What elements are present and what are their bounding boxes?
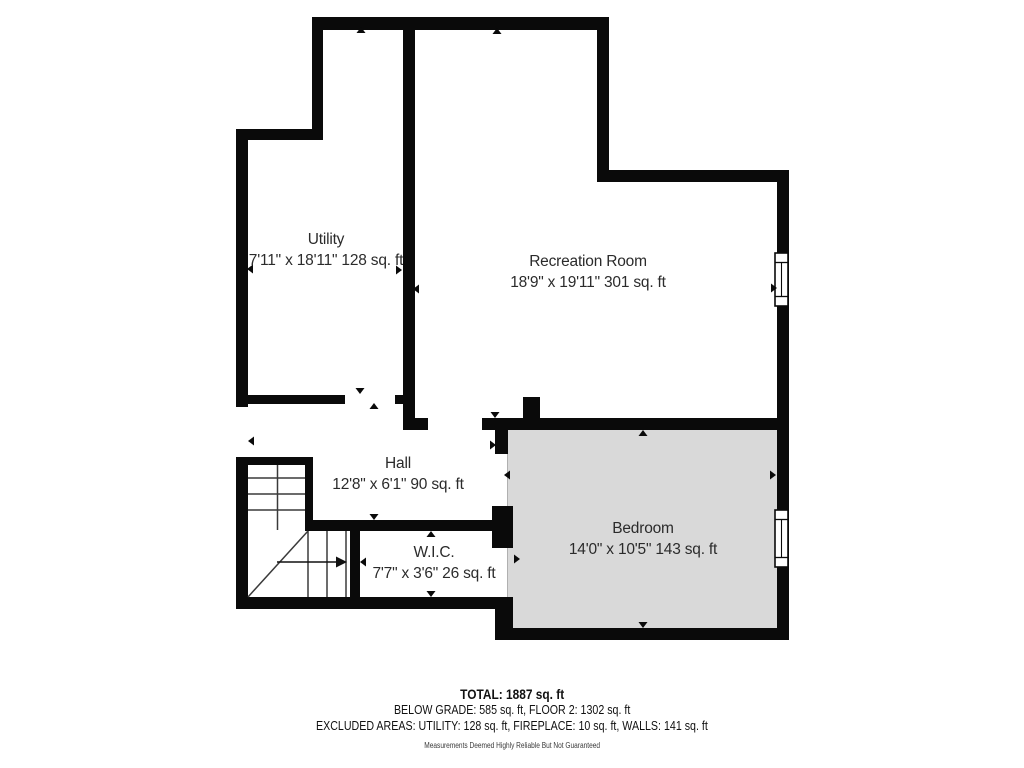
wall-utility-bottom	[247, 395, 345, 404]
wall-left-upper	[312, 17, 323, 140]
wall-stair-top	[236, 457, 313, 465]
floor-plan: Utility 7'11" x 18'11" 128 sq. ft Recrea…	[0, 0, 1024, 768]
wall-interior-utility-rec	[403, 17, 415, 419]
excluded-areas-text: EXCLUDED AREAS: UTILITY: 128 sq. ft, FIR…	[316, 718, 708, 734]
arrow-right-icon	[396, 266, 402, 275]
wall-bottom-stairs	[236, 597, 513, 609]
wall-top	[312, 17, 609, 30]
arrow-right-icon	[514, 555, 520, 564]
wall-bedroom-bottom	[495, 628, 789, 640]
walls	[236, 17, 789, 640]
arrow-up-icon	[639, 430, 648, 436]
fireplace-block	[523, 397, 540, 418]
wall-bedroom-left-1	[495, 428, 508, 454]
wall-step-left	[236, 129, 323, 140]
wall-rec-top-right	[597, 170, 789, 182]
window-icon-bedroom	[775, 510, 788, 567]
arrow-down-icon	[370, 514, 379, 520]
floor-wall-layer	[0, 0, 1024, 768]
wall-left-lower	[236, 457, 248, 609]
arrow-down-icon	[639, 622, 648, 628]
wall-rec-bedroom-divider	[482, 418, 789, 430]
wall-interior-foot	[403, 418, 428, 430]
arrow-left-icon	[360, 558, 366, 567]
below-grade-text: BELOW GRADE: 585 sq. ft, FLOOR 2: 1302 s…	[394, 702, 630, 718]
wall-wic-left	[350, 520, 360, 609]
wall-left-mid	[236, 129, 248, 407]
arrow-up-icon	[427, 531, 436, 537]
arrow-left-icon	[248, 437, 254, 446]
arrow-down-icon	[427, 591, 436, 597]
total-text: TOTAL: 1887 sq. ft	[460, 686, 564, 702]
excluded-areas-line: EXCLUDED AREAS: UTILITY: 128 sq. ft, FIR…	[0, 718, 1024, 734]
arrow-down-icon	[491, 412, 500, 418]
wall-step-right-vertical	[597, 17, 609, 182]
area-summary: TOTAL: 1887 sq. ft BELOW GRADE: 585 sq. …	[0, 686, 1024, 752]
total-line: TOTAL: 1887 sq. ft	[0, 686, 1024, 702]
arrow-right-icon	[770, 471, 776, 480]
disclaimer-text: Measurements Deemed Highly Reliable But …	[424, 740, 600, 752]
stair-winder-diagonal	[248, 531, 308, 597]
wall-right	[777, 170, 789, 640]
arrow-down-icon	[356, 388, 365, 394]
wall-stair-right	[305, 457, 313, 523]
arrow-left-icon	[504, 471, 510, 480]
window-icon-recreation	[775, 253, 788, 306]
below-grade-line: BELOW GRADE: 585 sq. ft, FLOOR 2: 1302 s…	[0, 702, 1024, 718]
disclaimer-line: Measurements Deemed Highly Reliable But …	[0, 740, 1024, 752]
wall-hall-wic-divider	[305, 520, 507, 531]
arrow-up-icon	[370, 403, 379, 409]
